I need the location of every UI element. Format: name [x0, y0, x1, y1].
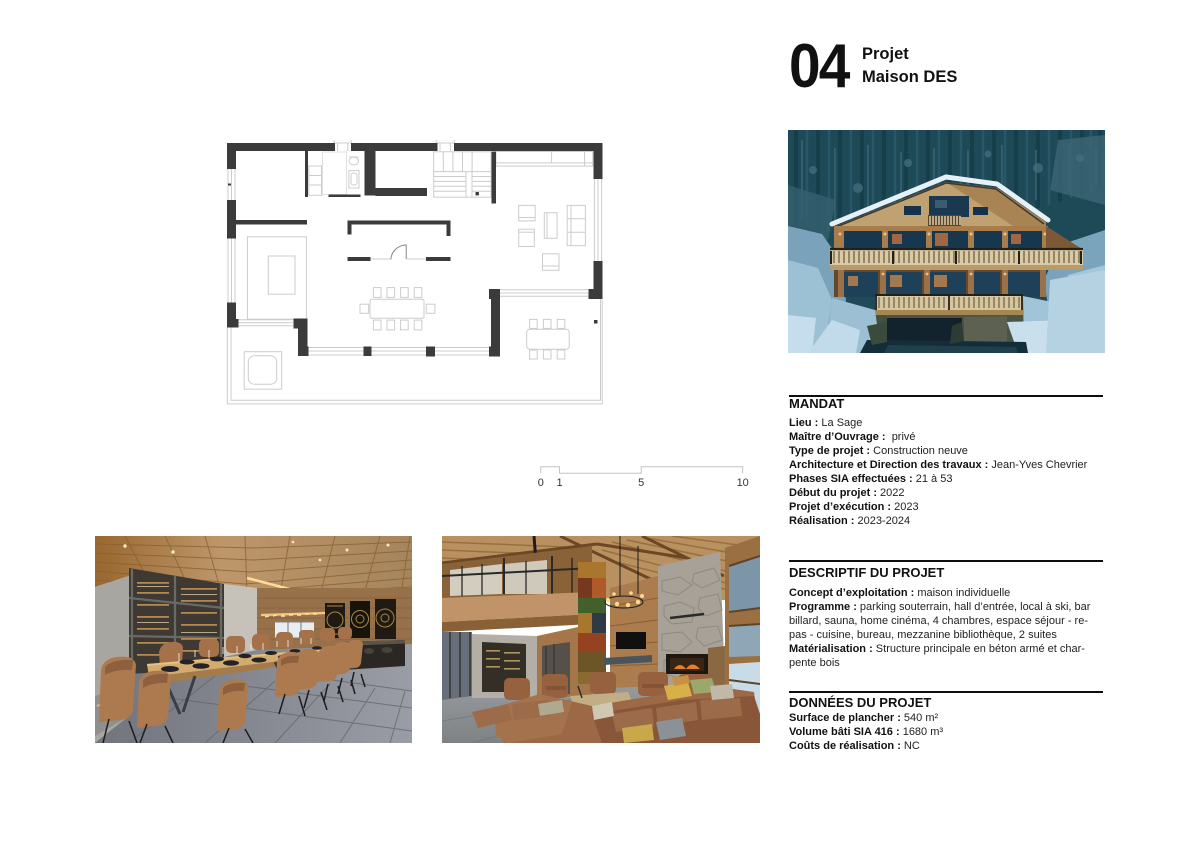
svg-text:1: 1	[556, 477, 562, 489]
svg-text:5: 5	[638, 477, 644, 489]
svg-text:0: 0	[538, 477, 544, 489]
svg-text:10: 10	[737, 477, 749, 489]
